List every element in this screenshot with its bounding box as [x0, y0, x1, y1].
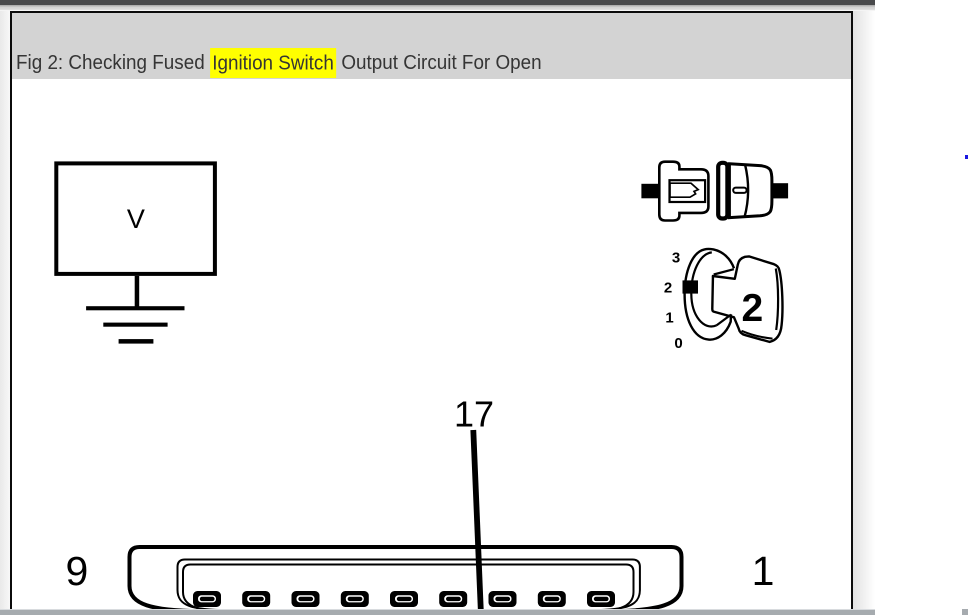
svg-text:1: 1	[752, 548, 775, 594]
svg-text:0: 0	[674, 335, 682, 352]
svg-text:2: 2	[664, 279, 672, 296]
svg-text:2: 2	[741, 287, 763, 330]
svg-text:3: 3	[672, 249, 680, 266]
svg-text:17: 17	[454, 394, 494, 435]
svg-text:1: 1	[665, 309, 673, 326]
svg-text:V: V	[127, 204, 145, 234]
svg-text:9: 9	[65, 548, 88, 594]
